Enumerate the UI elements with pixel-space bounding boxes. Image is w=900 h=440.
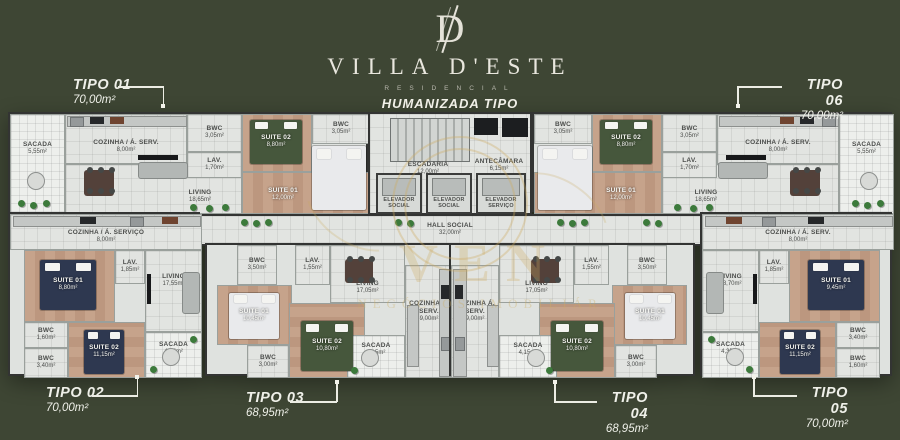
room-label: SACADA — [11, 141, 64, 149]
leader-dot — [135, 375, 139, 379]
plan-title: HUMANIZADA TIPO — [0, 96, 900, 111]
room-label: BWC — [837, 355, 879, 363]
sofa — [138, 162, 188, 179]
kitchen-counter — [487, 305, 499, 367]
plant — [150, 366, 157, 373]
room-label: SACADA — [348, 342, 404, 350]
plant — [746, 366, 753, 373]
elevator-car — [382, 178, 416, 196]
shaft-panel — [502, 118, 528, 137]
leader-line — [290, 401, 337, 403]
double-bed: SUITE 0211,15m² — [780, 330, 820, 374]
building-core: ESCADARIA12,00m² ANTECÂMARA6,15m² ELEVAD… — [368, 112, 532, 215]
room-area: 1,85m² — [760, 267, 788, 275]
room-lav: LAV.1,70m² — [662, 152, 717, 178]
callout-area: 68,95m² — [600, 423, 648, 435]
plant — [877, 200, 884, 207]
elevator-servico: ELEVADOR SERVIÇO — [476, 173, 526, 214]
room-area: 5,55m² — [11, 149, 64, 157]
plant — [190, 336, 197, 343]
dining-chairs — [87, 167, 93, 173]
callout-area: 68,95m² — [246, 407, 304, 419]
elevator-car — [432, 178, 466, 196]
leader-line — [336, 382, 338, 402]
room-area: 8,80m² — [250, 142, 302, 150]
room-label: SUITE 01 — [808, 277, 864, 285]
elevator-social-1: ELEVADOR SOCIAL — [376, 173, 422, 214]
room-area: 17,05m² — [500, 288, 573, 296]
plant — [407, 220, 414, 227]
brand-header: D VILLA D'ESTE RESIDENCIAL — [0, 6, 900, 92]
plant — [395, 219, 402, 226]
plant — [708, 336, 715, 343]
room-bwc: BWC3,05m² — [662, 114, 717, 152]
plant — [30, 202, 37, 209]
room-area: 1,55m² — [575, 265, 608, 273]
room-bwc: BWC3,00m² — [615, 345, 657, 378]
room-lav: LAV.1,85m² — [759, 250, 789, 284]
fridge — [762, 217, 776, 227]
plant — [864, 202, 871, 209]
stove — [455, 285, 463, 299]
room-label: ESCADARIA — [386, 161, 470, 169]
round-table — [162, 348, 180, 366]
room-label: SUITE 02 — [84, 344, 124, 352]
callout-area: 70,00m² — [785, 110, 843, 122]
room-label: LAV. — [575, 257, 608, 265]
room-label: SACADA — [500, 342, 556, 350]
room-sacada: SACADA5,55m² — [10, 114, 65, 214]
room-area: 1,60m² — [25, 335, 67, 343]
room-area: 11,15m² — [780, 352, 820, 360]
leader-line — [753, 377, 755, 396]
round-table — [361, 349, 379, 367]
plant — [690, 205, 697, 212]
callout-name: TIPO 06 — [785, 77, 843, 109]
room-area: 11,15m² — [84, 352, 124, 360]
plant — [190, 204, 197, 211]
leader-line — [554, 401, 597, 403]
leader-dot — [736, 104, 740, 108]
callout-name: TIPO 03 — [246, 390, 304, 406]
room-label: SUITE 01 — [625, 308, 675, 316]
pantry-cabinet — [162, 217, 178, 224]
kitchen-counter — [407, 305, 419, 367]
double-bed — [312, 146, 366, 210]
room-area: 3,50m² — [628, 265, 666, 273]
room-label: SUITE 02 — [780, 344, 820, 352]
plant — [706, 204, 713, 211]
double-bed: SUITE 0210,80m² — [301, 321, 353, 371]
room-bwc: BWC3,00m² — [247, 345, 289, 378]
room-area: 3,05m² — [535, 129, 591, 137]
room-bwc: BWC3,40m² — [836, 322, 880, 348]
dining-table — [531, 259, 559, 283]
room-bwc: BWC3,50m² — [627, 245, 667, 285]
plant — [569, 220, 576, 227]
callout-name: TIPO 04 — [600, 390, 648, 422]
leader-dot — [553, 380, 557, 384]
dining-chairs — [793, 167, 799, 173]
room-label: SUITE 01 — [229, 308, 279, 316]
room-label: COZINHA / Á. SERV. — [66, 139, 186, 147]
tv-panel — [726, 155, 766, 160]
unit-tipo-01: SACADA5,55m² COZINHA / Á. SERV.8,00m² LI… — [8, 112, 368, 212]
double-bed: SUITE 018,80m² — [40, 260, 96, 310]
room-label: ELEVADOR SERVIÇO — [478, 197, 524, 211]
room-area: 1,55m² — [296, 265, 329, 273]
room-area: 1,70m² — [188, 165, 241, 173]
dining-table — [84, 170, 114, 196]
room-lav: LAV.1,70m² — [187, 152, 242, 178]
room-area: 3,00m² — [248, 362, 288, 370]
stove — [808, 217, 824, 224]
callout-area: 70,00m² — [800, 418, 848, 430]
room-label: BWC — [248, 354, 288, 362]
building-title: VILLA D'ESTE — [0, 54, 900, 80]
round-table — [860, 172, 878, 190]
sofa — [718, 162, 768, 179]
dining-table — [790, 170, 820, 196]
leader-line — [137, 377, 139, 396]
stove — [90, 117, 104, 124]
callout-name: TIPO 01 — [73, 77, 131, 93]
room-label: BWC — [188, 125, 241, 133]
plant — [581, 219, 588, 226]
room-label: SACADA — [840, 141, 893, 149]
room-area: 12,00m² — [253, 195, 313, 203]
brand-monogram-icon: D — [430, 6, 470, 52]
callout-tipo-04: TIPO 04 68,95m² — [600, 390, 648, 435]
room-area: 8,80m² — [600, 142, 652, 150]
room-bwc: BWC3,50m² — [237, 245, 277, 285]
room-bwc: BWC1,60m² — [24, 322, 68, 348]
leader-dot — [335, 380, 339, 384]
plant — [43, 200, 50, 207]
round-table — [27, 172, 45, 190]
double-bed: SUITE 0211,15m² — [84, 330, 124, 374]
room-label: SUITE 01 — [253, 187, 313, 195]
room-area: 3,05m² — [663, 133, 716, 141]
tv-panel — [753, 274, 757, 304]
plant — [546, 367, 553, 374]
room-bwc: BWC3,05m² — [187, 114, 242, 152]
sofa — [706, 272, 724, 314]
room-label: COZINHA / Á. SERVIÇO — [11, 229, 201, 237]
room-sacada: SACADA5,55m² — [839, 114, 894, 214]
room-area: 32,00m² — [199, 230, 701, 238]
room-bwc: BWC1,60m² — [836, 348, 880, 378]
plant — [674, 204, 681, 211]
plant — [643, 219, 650, 226]
unit-tipo-06: SACADA5,55m² COZINHA / Á. SERV.8,00m² LI… — [532, 112, 892, 212]
room-label: ELEVADOR SOCIAL — [378, 197, 420, 211]
room-label: SUITE 01 — [591, 187, 651, 195]
leader-line — [163, 86, 165, 106]
room-label: BWC — [25, 327, 67, 335]
callout-name: TIPO 02 — [46, 385, 104, 401]
plant — [351, 367, 358, 374]
callout-tipo-01: TIPO 01 70,00m² — [73, 77, 131, 106]
room-label: LAV. — [116, 259, 144, 267]
double-bed: SUITE 028,80m² — [250, 120, 302, 164]
room-label: BWC — [628, 257, 666, 265]
room-label: BWC — [837, 327, 879, 335]
callout-area: 70,00m² — [73, 94, 131, 106]
room-label: SUITE 02 — [600, 134, 652, 142]
room-label: LAV. — [296, 257, 329, 265]
dining-chairs — [347, 256, 353, 262]
room-label: SUITE 01 — [40, 277, 96, 285]
room-label: LIVING — [165, 189, 235, 197]
plant — [852, 200, 859, 207]
room-area: 3,40m² — [25, 363, 67, 371]
double-bed — [538, 146, 592, 210]
room-area: 3,40m² — [837, 335, 879, 343]
room-area: 10,45m² — [625, 316, 675, 324]
round-table — [527, 349, 545, 367]
fridge — [130, 217, 144, 227]
room-area: 3,05m² — [188, 133, 241, 141]
room-label: BWC — [663, 125, 716, 133]
room-area: 3,00m² — [616, 362, 656, 370]
kitchen-counter — [67, 116, 187, 127]
room-label: BWC — [535, 121, 591, 129]
room-area: 3,05m² — [313, 129, 369, 137]
room-area: 10,80m² — [301, 346, 353, 354]
room-bwc: BWC3,40m² — [24, 348, 68, 378]
pantry-cabinet — [110, 117, 124, 124]
room-label: COZINHA / Á. SERV. — [718, 139, 838, 147]
room-area: 10,45m² — [229, 316, 279, 324]
room-lav: LAV.1,55m² — [295, 245, 330, 285]
room-area: 1,70m² — [663, 165, 716, 173]
room-area: 9,45m² — [808, 285, 864, 293]
double-bed: SUITE 028,80m² — [600, 120, 652, 164]
room-bwc: BWC3,05m² — [534, 114, 592, 144]
leader-line — [554, 382, 556, 402]
unit-tipo-02: COZINHA / Á. SERVIÇO8,00m² LAV.1,85m² LI… — [8, 212, 200, 376]
tv-panel — [147, 274, 151, 304]
room-lav: LAV.1,55m² — [574, 245, 609, 285]
room-label: BWC — [25, 355, 67, 363]
callout-tipo-02: TIPO 02 70,00m² — [46, 385, 104, 414]
leader-line — [737, 86, 739, 106]
room-label: COZINHA / Á. SERV. — [703, 229, 893, 237]
room-area: 5,55m² — [840, 149, 893, 157]
room-label: ELEVADOR SOCIAL — [428, 197, 470, 211]
round-table — [726, 348, 744, 366]
building-plan: SACADA5,55m² COZINHA / Á. SERV.8,00m² LI… — [8, 110, 892, 376]
leader-line — [737, 86, 782, 88]
plant — [655, 220, 662, 227]
unit-tipo-05: COZINHA / Á. SERV.8,00m² LIVING18,70m² L… — [700, 212, 892, 376]
unit-tipo-04: BWC3,50m² LAV.1,55m² BWC3,00m² LIVING17,… — [449, 243, 695, 376]
room-label: SUITE 02 — [250, 134, 302, 142]
leader-line — [92, 395, 138, 397]
room-area: 10,80m² — [551, 346, 603, 354]
sofa — [182, 272, 200, 314]
room-area: 8,00m² — [718, 147, 838, 155]
room-label: SUITE 02 — [301, 338, 353, 346]
elevator-car — [482, 178, 520, 196]
callout-tipo-03: TIPO 03 68,95m² — [246, 390, 304, 419]
room-area: 1,85m² — [116, 267, 144, 275]
callout-tipo-05: TIPO 05 70,00m² — [800, 385, 848, 430]
leader-line — [753, 395, 797, 397]
double-bed: SUITE 0110,45m² — [229, 293, 279, 339]
room-area: 1,60m² — [837, 363, 879, 371]
callout-tipo-06: TIPO 06 70,00m² — [785, 77, 843, 122]
leader-line — [118, 86, 164, 88]
room-label: ANTECÂMARA — [466, 158, 532, 166]
room-label: BWC — [238, 257, 276, 265]
room-area: 8,80m² — [40, 285, 96, 293]
double-bed: SUITE 0110,45m² — [625, 293, 675, 339]
room-area: 12,00m² — [591, 195, 651, 203]
room-label: SUITE 02 — [551, 338, 603, 346]
room-bwc: BWC3,05m² — [312, 114, 370, 144]
room-area: 17,05m² — [331, 288, 404, 296]
plant — [241, 219, 248, 226]
plant — [18, 200, 25, 207]
dining-table — [345, 259, 373, 283]
room-label: LIVING — [671, 189, 741, 197]
shaft-panel — [474, 118, 498, 135]
room-label: LAV. — [760, 259, 788, 267]
room-area: 3,50m² — [238, 265, 276, 273]
plant — [253, 220, 260, 227]
leader-dot — [752, 375, 756, 379]
room-area: 8,00m² — [11, 237, 201, 245]
elevator-social-2: ELEVADOR SOCIAL — [426, 173, 472, 214]
dining-chairs — [533, 256, 539, 262]
room-label: BWC — [313, 121, 369, 129]
room-label: BWC — [616, 354, 656, 362]
floorplan-canvas: D VILLA D'ESTE RESIDENCIAL HUMANIZADA TI… — [0, 0, 900, 440]
plant — [557, 219, 564, 226]
plant — [222, 204, 229, 211]
room-area: 8,00m² — [66, 147, 186, 155]
fridge — [70, 117, 84, 127]
pantry-cabinet — [726, 217, 742, 224]
callout-area: 70,00m² — [46, 402, 104, 414]
room-label: LAV. — [663, 157, 716, 165]
callout-name: TIPO 05 — [800, 385, 848, 417]
double-bed: SUITE 019,45m² — [808, 260, 864, 310]
stairs — [390, 118, 470, 162]
room-lav: LAV.1,85m² — [115, 250, 145, 284]
stove — [441, 285, 449, 299]
plant — [265, 219, 272, 226]
room-label: LAV. — [188, 157, 241, 165]
tv-panel — [138, 155, 178, 160]
stove — [80, 217, 96, 224]
fridge — [455, 337, 465, 351]
room-area: 18,65m² — [671, 197, 741, 205]
room-label: HALL SOCIAL — [199, 222, 701, 230]
hall-social: HALL SOCIAL32,00m² — [197, 214, 703, 246]
unit-tipo-03: BWC3,50m² LAV.1,55m² BWC3,00m² LIVING17,… — [205, 243, 451, 376]
leader-dot — [161, 104, 165, 108]
plant — [206, 205, 213, 212]
double-bed: SUITE 0210,80m² — [551, 321, 603, 371]
room-area: 8,00m² — [703, 237, 893, 245]
